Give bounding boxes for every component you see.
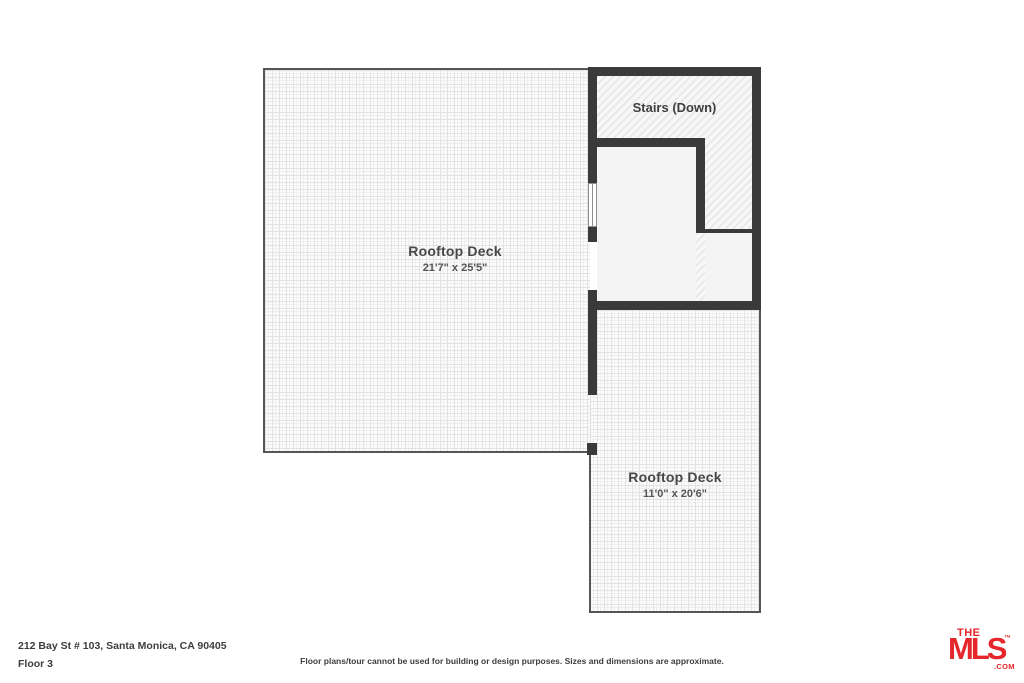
room-label: Rooftop Deck [345,243,565,259]
mls-logo-com: .COM [994,662,1015,671]
wall-stairs-left-upper [588,67,597,183]
wall-landing-top [597,138,705,147]
stairs-landing-floor-right [705,233,752,301]
room-small-rooftop-deck [590,310,761,613]
wall-deck-divider [588,310,597,395]
wall-corner-stub [587,443,597,455]
wall-stairs-left-stub [588,227,597,242]
trademark-icon: ™ [1004,635,1011,642]
wall-stairs-bottom [588,301,761,310]
mls-logo-mls: MLS [948,633,1004,664]
room-dimensions: 21'7" x 25'5" [345,262,565,274]
room-label: Rooftop Deck [565,469,785,485]
floorplan-canvas: Rooftop Deck 21'7" x 25'5" Stairs (Down)… [0,0,1024,683]
address-text: 212 Bay St # 103, Santa Monica, CA 90405 [18,640,227,652]
room-label: Stairs (Down) [633,100,717,115]
window-symbol [588,183,597,227]
stairs-landing-floor [597,147,696,301]
wall-landing-step-edge [705,229,752,233]
main-deck-label-block: Rooftop Deck 21'7" x 25'5" [345,243,565,274]
stairs-label-block: Stairs (Down) [597,76,752,138]
wall-stairs-top [588,67,761,76]
small-deck-label-block: Rooftop Deck 11'0" x 20'6" [565,469,785,500]
mls-logo: THE MLS ™ .COM [946,624,1018,674]
room-dimensions: 11'0" x 20'6" [565,488,785,500]
wall-stairs-left-lower [588,290,597,301]
wall-stairs-right [752,67,761,310]
wall-landing-vertical [696,138,705,233]
disclaimer-text: Floor plans/tour cannot be used for buil… [0,656,1024,666]
